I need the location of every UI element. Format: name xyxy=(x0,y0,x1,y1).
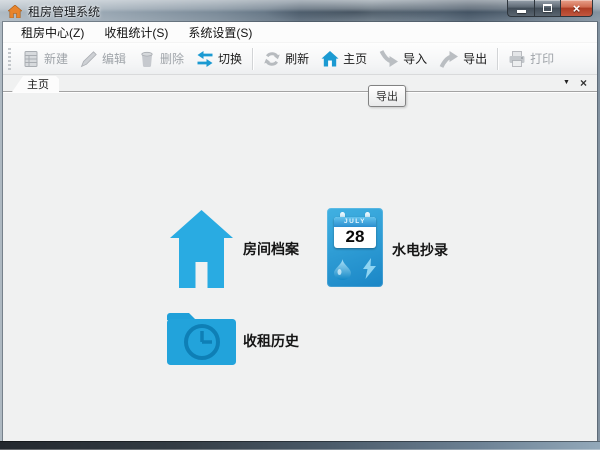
calendar-day: 28 xyxy=(334,227,376,247)
window-title: 租房管理系统 xyxy=(28,3,100,20)
edit-button-label: 编辑 xyxy=(102,50,126,67)
calendar-icon: JULY 28 xyxy=(334,217,376,248)
minimize-icon xyxy=(517,10,526,13)
folder-clock-icon xyxy=(165,310,238,367)
tab-strip: 主页 ▼ × xyxy=(3,75,597,92)
delete-button-label: 删除 xyxy=(160,50,184,67)
app-house-icon xyxy=(8,5,22,18)
new-button[interactable]: 新建 xyxy=(16,46,74,72)
water-drop-icon xyxy=(334,259,351,280)
room-archive-label: 房间档案 xyxy=(243,239,299,259)
home-button[interactable]: 主页 xyxy=(315,46,373,72)
maximize-icon xyxy=(543,4,552,12)
home-page-content: 房间档案 JULY 28 xyxy=(3,92,597,441)
toolbar-separator xyxy=(252,48,253,70)
tab-home-label: 主页 xyxy=(27,76,49,92)
import-button[interactable]: 导入 xyxy=(373,46,433,72)
new-document-icon xyxy=(22,50,40,68)
print-button[interactable]: 打印 xyxy=(502,46,560,72)
import-button-label: 导入 xyxy=(403,50,427,67)
window-controls: × xyxy=(507,0,593,17)
export-tooltip: 导出 xyxy=(368,85,406,107)
export-button-label: 导出 xyxy=(463,50,487,67)
toolbar-separator xyxy=(497,48,498,70)
close-icon: × xyxy=(573,1,581,16)
maximize-button[interactable] xyxy=(534,0,561,17)
calendar-month: JULY xyxy=(334,217,376,227)
minimize-button[interactable] xyxy=(507,0,534,17)
lightning-icon xyxy=(363,258,376,279)
menu-system-settings[interactable]: 系统设置(S) xyxy=(178,22,262,43)
tab-home[interactable]: 主页 xyxy=(12,76,59,92)
client-area: 租房中心(Z) 收租统计(S) 系统设置(S) 新建 编辑 xyxy=(3,22,597,441)
house-icon xyxy=(170,210,233,288)
new-button-label: 新建 xyxy=(44,50,68,67)
home-button-label: 主页 xyxy=(343,50,367,67)
print-button-label: 打印 xyxy=(530,50,554,67)
tab-close-icon[interactable]: × xyxy=(580,78,587,88)
window-bottom-border xyxy=(0,441,600,450)
utility-record-label: 水电抄录 xyxy=(392,240,448,260)
switch-arrows-icon xyxy=(196,50,214,68)
edit-pencil-icon xyxy=(80,50,98,68)
switch-button[interactable]: 切换 xyxy=(190,46,248,72)
app-window: 租房管理系统 × 租房中心(Z) 收租统计(S) 系统设置(S) 新建 xyxy=(0,0,600,450)
refresh-icon xyxy=(263,50,281,68)
utility-record-shortcut[interactable]: JULY 28 xyxy=(327,208,383,287)
toolbar-gripper[interactable] xyxy=(8,48,11,70)
rent-history-label: 收租历史 xyxy=(243,331,299,351)
delete-button[interactable]: 删除 xyxy=(132,46,190,72)
close-button[interactable]: × xyxy=(561,0,593,17)
switch-button-label: 切换 xyxy=(218,50,242,67)
tab-strip-controls: ▼ × xyxy=(563,78,587,88)
rent-history-shortcut[interactable] xyxy=(165,310,238,367)
printer-icon xyxy=(508,50,526,68)
trash-icon xyxy=(138,50,156,68)
refresh-button-label: 刷新 xyxy=(285,50,309,67)
menu-bar: 租房中心(Z) 收租统计(S) 系统设置(S) xyxy=(3,22,597,42)
menu-rent-statistics[interactable]: 收租统计(S) xyxy=(94,22,178,43)
toolbar: 新建 编辑 删除 切换 xyxy=(3,42,597,75)
menu-rental-center[interactable]: 租房中心(Z) xyxy=(11,22,94,43)
edit-button[interactable]: 编辑 xyxy=(74,46,132,72)
export-arrow-icon xyxy=(439,50,459,68)
export-button[interactable]: 导出 xyxy=(433,46,493,72)
import-arrow-icon xyxy=(379,50,399,68)
tab-list-dropdown-icon[interactable]: ▼ xyxy=(563,78,570,88)
home-icon xyxy=(321,50,339,68)
refresh-button[interactable]: 刷新 xyxy=(257,46,315,72)
room-archive-shortcut[interactable] xyxy=(170,210,233,288)
